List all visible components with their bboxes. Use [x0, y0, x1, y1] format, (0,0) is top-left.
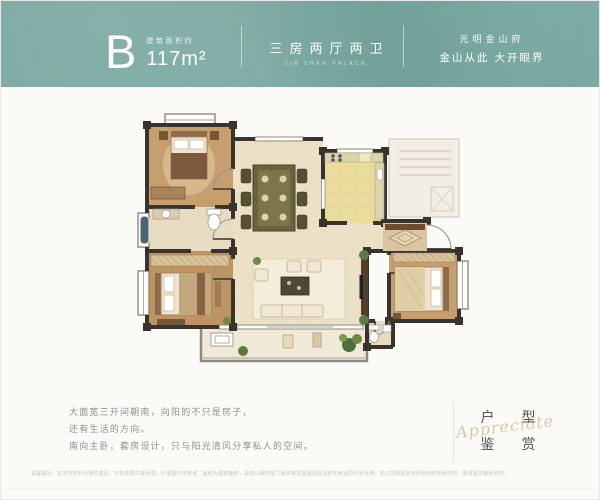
- dining-furniture: [241, 165, 307, 231]
- description-block: 大面宽三开间朝南，向阳的不只是房子， 还有生活的方向。 南向主卧，套房设计，只与…: [69, 404, 314, 455]
- plant-icon: [359, 315, 369, 325]
- layout-block: 三房两厅两卫 JIN SHAN PALACE: [253, 38, 399, 67]
- sink-icon: [162, 210, 170, 218]
- project-slogan: 金山从此 大开眼界: [415, 50, 569, 65]
- description-line-3: 南向主卧，套房设计，只与阳光清风分享私人的空间。: [69, 438, 314, 455]
- bench-icon: [215, 281, 221, 307]
- disclaimer-text: 温馨提示：本宣传资料为要约邀请，不构成要约或承诺；户型图仅供参考，面积为建筑面积…: [31, 470, 577, 477]
- toilet-icon: [207, 209, 221, 230]
- tv-icon: [360, 275, 364, 299]
- description-line-1: 大面宽三开间朝南，向阳的不只是房子，: [69, 404, 314, 421]
- unit-area-block: B 建筑面积约 117m²: [105, 29, 207, 75]
- photo-edge-line: [7, 489, 593, 490]
- table-icon: [283, 335, 293, 348]
- unit-letter: B: [105, 29, 137, 75]
- bathtub-icon: [140, 216, 149, 244]
- area-block: 建筑面积约 117m²: [146, 29, 206, 71]
- foyer-furniture: [383, 223, 427, 251]
- entry-door-arc: [427, 225, 451, 249]
- seal-characters: 户 型 鉴 赏: [475, 407, 541, 454]
- seal-char-4: 赏: [522, 434, 536, 454]
- plant-icon: [359, 250, 369, 260]
- sink-icon: [377, 169, 383, 180]
- seal-char-2: 型: [522, 407, 536, 427]
- window-dining: [255, 137, 303, 141]
- plant-icon: [253, 257, 261, 265]
- floorplan-flyer: B 建筑面积约 117m² 三房两厅两卫 JIN SHAN PALACE 光明金…: [0, 0, 600, 500]
- appreciation-seal: Appreciate 户 型 鉴 赏: [453, 398, 559, 468]
- bed-icon: [171, 131, 207, 179]
- dresser-icon: [151, 187, 185, 199]
- seal-char-3: 鉴: [481, 434, 495, 454]
- header-divider-right: [403, 26, 404, 67]
- toilet-icon: [370, 332, 379, 343]
- plant-icon: [238, 346, 248, 356]
- header-band: B 建筑面积约 117m² 三房两厅两卫 JIN SHAN PALACE 光明金…: [1, 1, 599, 87]
- sliding-door-kitchen: [322, 179, 326, 209]
- washer-icon: [211, 333, 233, 346]
- floor-plan: [137, 109, 471, 397]
- bed-icon: [395, 267, 449, 311]
- basin-icon: [383, 325, 391, 332]
- coffee-table-icon: [281, 277, 309, 295]
- bed-icon: [155, 273, 211, 315]
- appliance-icon: [359, 153, 371, 162]
- public-corridor: [389, 139, 459, 217]
- project-name: 光明金山府: [415, 32, 569, 45]
- dining-table-icon: [253, 165, 295, 231]
- shoe-cabinet-icon: [385, 224, 425, 230]
- nightstand-icon: [393, 313, 401, 319]
- nightstand-icon: [159, 131, 168, 140]
- description-line-2: 还有生活的方向。: [69, 421, 314, 438]
- plant-icon: [223, 317, 231, 325]
- window-kitchen: [337, 149, 373, 153]
- layout-cn: 三房两厅两卫: [253, 38, 399, 57]
- area-label: 建筑面积约: [146, 36, 206, 46]
- layout-en: JIN SHAN PALACE: [253, 61, 399, 67]
- nightstand-icon: [210, 131, 219, 140]
- header-divider-left: [241, 26, 242, 67]
- seal-char-1: 户: [481, 407, 495, 427]
- slogan-block: 光明金山府 金山从此 大开眼界: [415, 32, 569, 65]
- area-value: 117m²: [146, 48, 206, 71]
- dresser-icon: [157, 319, 185, 325]
- stand-icon: [313, 333, 321, 347]
